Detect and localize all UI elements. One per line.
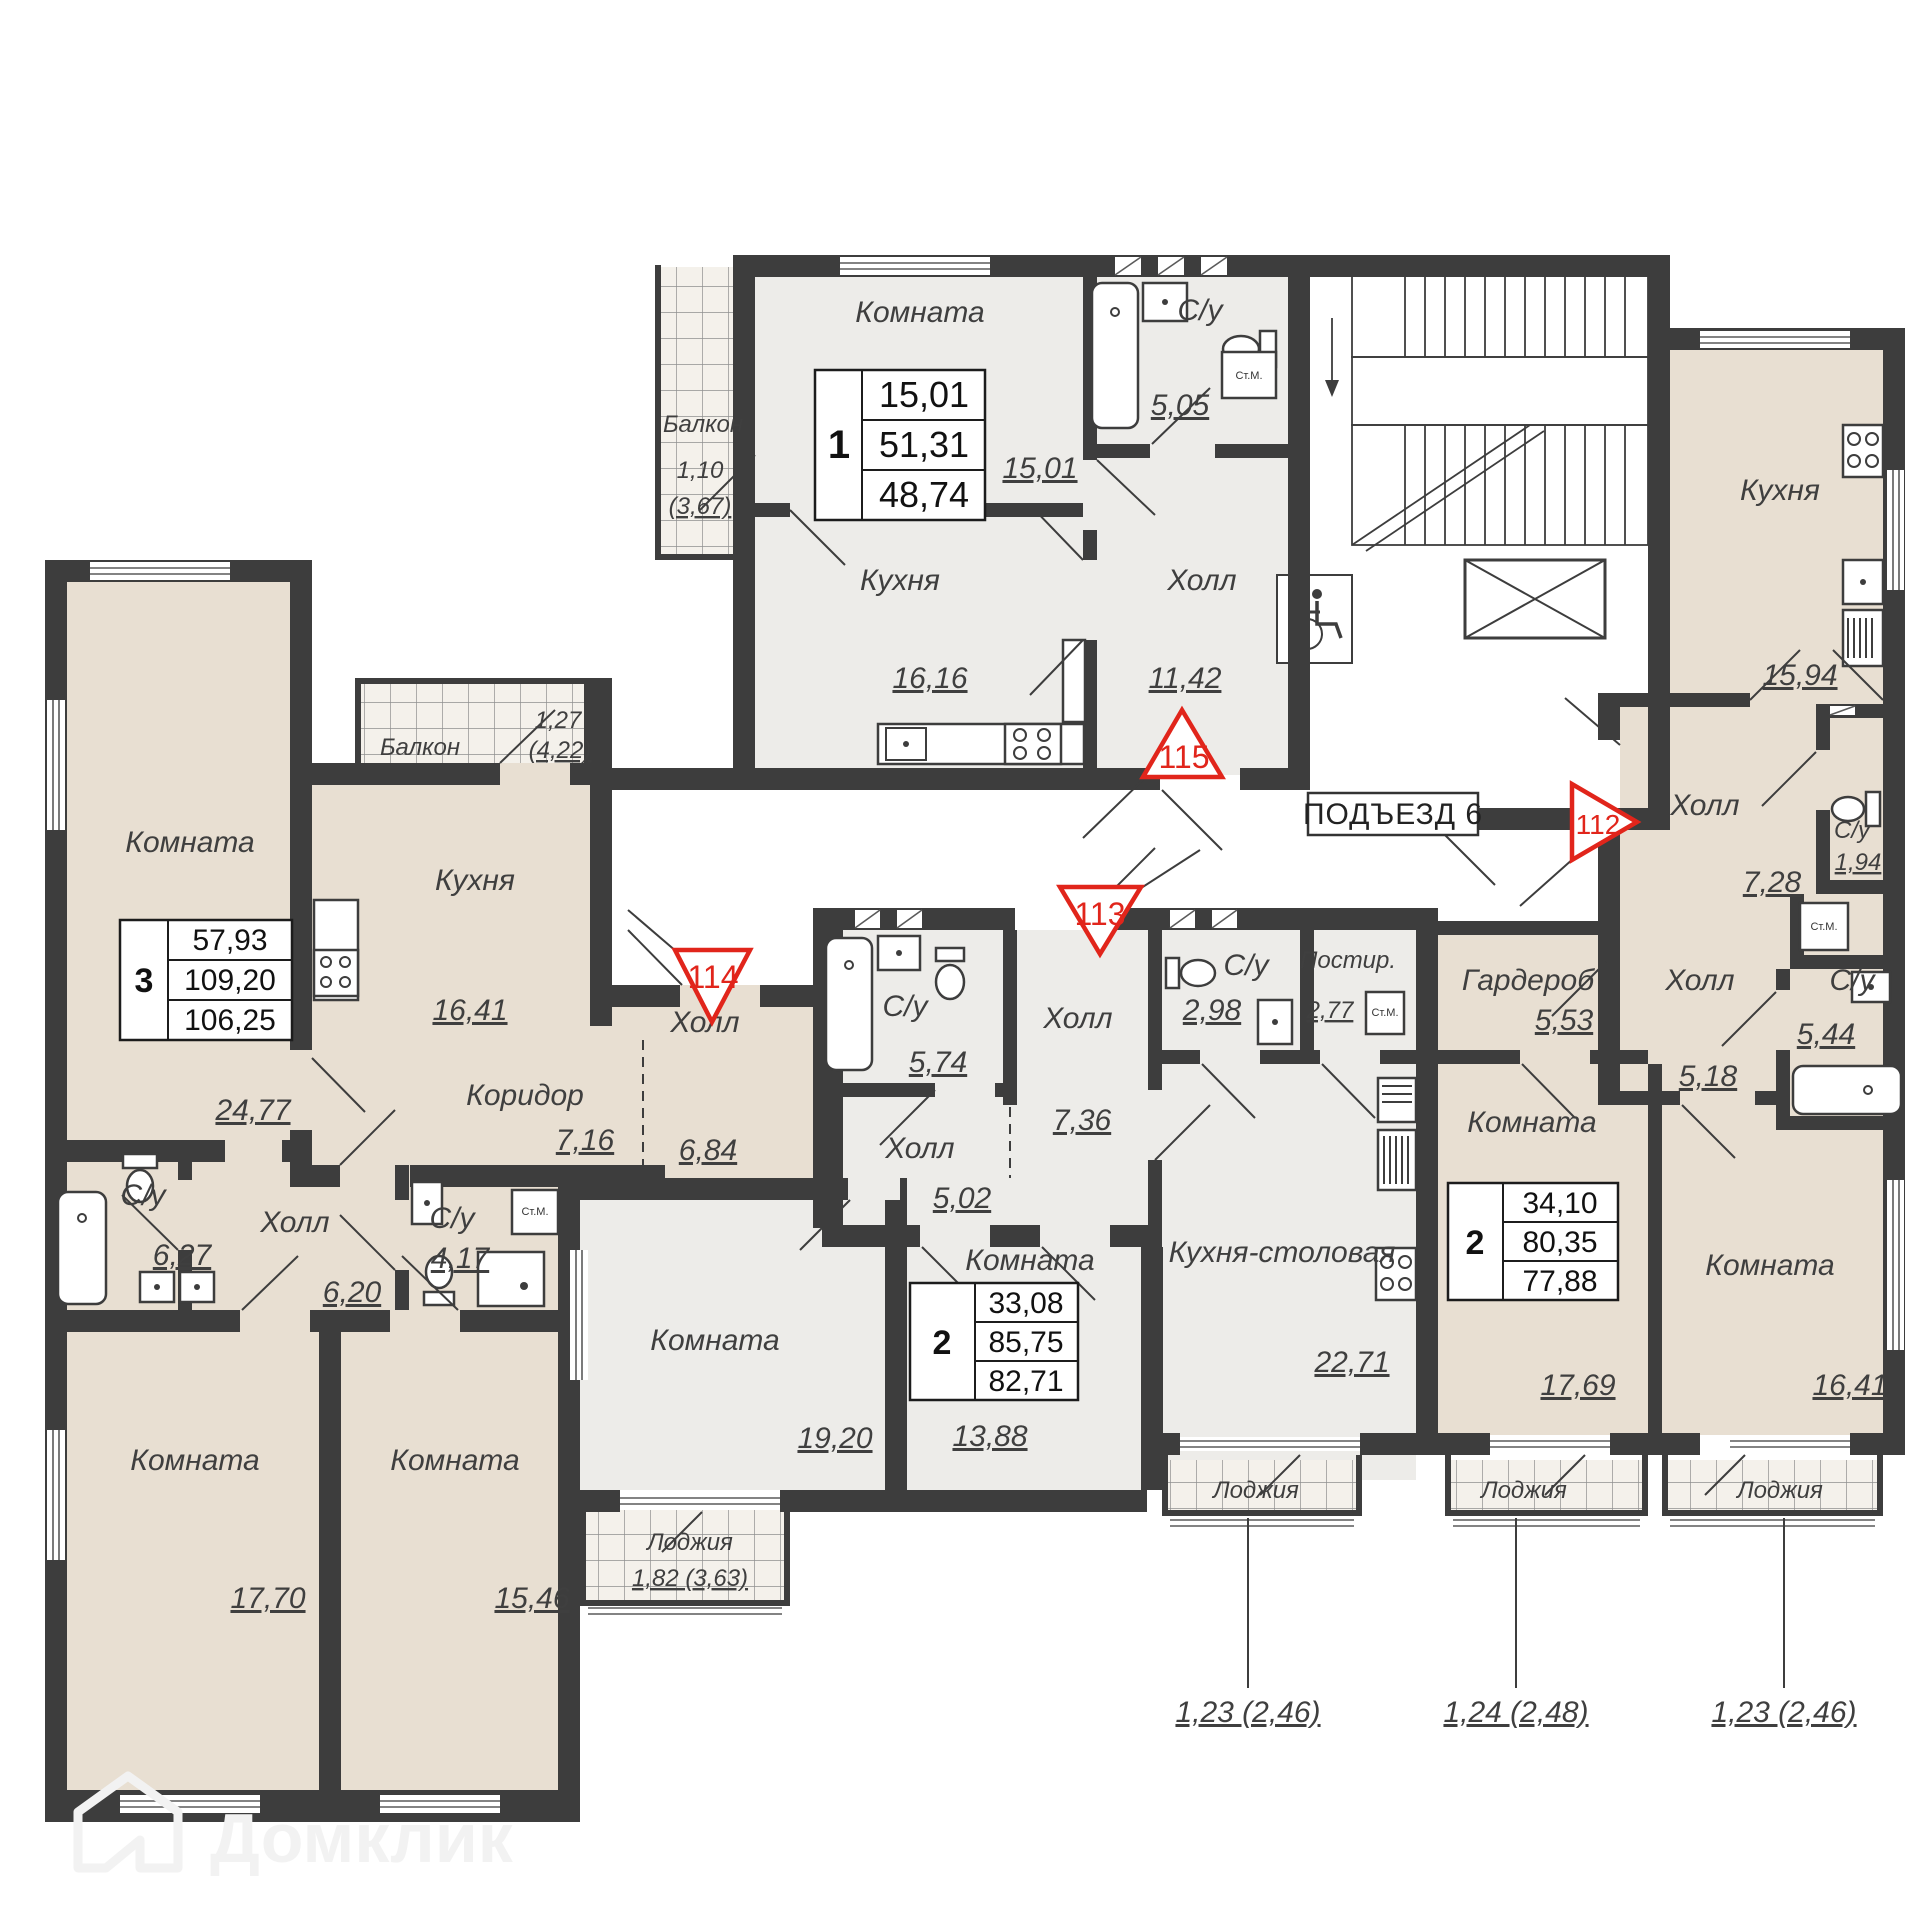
room-label: С/у: [1178, 294, 1225, 327]
room-label: Лоджия: [1211, 1477, 1299, 1504]
unit-114-type: 3: [135, 962, 154, 1000]
room-dim: 16,41: [432, 994, 507, 1027]
room-label: Лоджия: [645, 1529, 733, 1556]
room-dim: 5,05: [1151, 389, 1210, 422]
room-dim: 7,36: [1053, 1104, 1112, 1137]
room-dim: 2,98: [1182, 994, 1242, 1027]
room-dim: 2,77: [1306, 997, 1355, 1024]
room-label: Комната: [390, 1444, 519, 1477]
room-label: Комната: [855, 296, 984, 329]
unit-113-type: 2: [933, 1324, 952, 1362]
washer-label: Ст.М.: [521, 1206, 548, 1218]
room-dim: 24,77: [214, 1094, 291, 1127]
room-dim: 5,74: [909, 1046, 967, 1079]
unit-115-reduced: 48,74: [879, 474, 969, 515]
washer-label: Ст.М.: [1235, 370, 1262, 382]
room-label: Холл: [1664, 964, 1734, 997]
room-label: Лоджия: [1479, 1477, 1567, 1504]
room-label: Кухня: [1740, 474, 1820, 507]
toilet-icon: [1166, 958, 1215, 988]
room-dim: 13,88: [952, 1420, 1027, 1453]
room-label: С/у: [430, 1202, 477, 1235]
room-dim: 22,71: [1313, 1346, 1389, 1379]
brand-watermark-label: Домклик: [210, 1799, 514, 1877]
stove-icon: [1843, 425, 1883, 477]
room-label: С/у: [121, 1179, 168, 1212]
stair-core: [1277, 267, 1648, 663]
toilet-icon: [936, 948, 964, 999]
sink-icon: [878, 936, 920, 970]
unit-marker-label: 114: [687, 959, 738, 995]
room-dim: 11,42: [1149, 662, 1222, 695]
washer-label: Ст.М.: [1810, 921, 1837, 933]
entrance-sign: ПОДЪЕЗД 6: [1303, 793, 1483, 835]
room-label: Холл: [1669, 789, 1739, 822]
room-dim: 19,20: [797, 1422, 872, 1455]
unit-113-total: 85,75: [988, 1326, 1063, 1359]
room-label: Балкон: [663, 411, 743, 438]
room-label: Постир.: [1300, 947, 1396, 974]
room-dim: 15,94: [1762, 659, 1837, 692]
unit-table-114: 3 57,93 109,20 106,25: [120, 920, 292, 1040]
room-label: Лоджия: [1735, 1477, 1823, 1504]
room-dim: 17,69: [1540, 1369, 1615, 1402]
room-dim: 7,28: [1743, 866, 1802, 899]
unit-marker-label: 115: [1158, 739, 1209, 775]
room-dim: 6,27: [153, 1239, 213, 1272]
bathtub-icon: [1092, 283, 1138, 428]
unit-115-total: 51,31: [879, 424, 969, 465]
unit-marker-label: 112: [1576, 809, 1621, 840]
room-label: Комната: [965, 1244, 1094, 1277]
room-dim: 6,84: [679, 1134, 737, 1167]
floor-plan: 1 15,01 51,31 48,74 3 57,93 109,20 106,2…: [0, 0, 1920, 1920]
room-label: Комната: [1705, 1249, 1834, 1282]
room-dim: 4,17: [431, 1242, 491, 1275]
unit-115-type: 1: [828, 423, 850, 467]
room-dim: (3,67): [669, 493, 732, 520]
room-label: Холл: [259, 1206, 329, 1239]
bathtub-icon: [58, 1192, 106, 1304]
room-label: Гардероб: [1462, 964, 1595, 997]
unit-marker-label: 113: [1074, 896, 1125, 932]
room-dim: 16,41: [1812, 1369, 1887, 1402]
room-label: С/у: [1834, 817, 1872, 844]
room-label: Коридор: [466, 1079, 584, 1112]
unit-114-reduced: 106,25: [184, 1004, 276, 1037]
room-label: Холл: [1166, 564, 1236, 597]
room-dim: 5,44: [1797, 1018, 1855, 1051]
unit-114-total: 109,20: [184, 964, 276, 997]
loggia-callout: 1,23 (2,46): [1175, 1696, 1320, 1729]
room-dim: 15,01: [1002, 452, 1077, 485]
unit-112-reduced: 77,88: [1522, 1265, 1597, 1298]
room-label: Кухня: [860, 564, 940, 597]
room-dim: 1,94: [1835, 849, 1882, 876]
room-dim: (4,22): [529, 737, 592, 764]
room-dim: 6,20: [323, 1276, 382, 1309]
room-dim: 1,27: [535, 707, 583, 734]
unit-114-living: 57,93: [192, 924, 267, 957]
room-dim: 5,53: [1535, 1004, 1594, 1037]
unit-table-112: 2 34,10 80,35 77,88: [1448, 1183, 1618, 1300]
room-label: Кухня: [435, 864, 515, 897]
unit-112-living: 34,10: [1522, 1187, 1597, 1220]
loggia-callout: 1,24 (2,48): [1443, 1696, 1588, 1729]
room-dim: 7,16: [556, 1124, 615, 1157]
stove-icon: [1005, 724, 1061, 764]
elevator-icon: [1465, 560, 1605, 638]
bathtub-icon: [826, 938, 872, 1070]
loggia-callouts: 1,23 (2,46) 1,24 (2,48) 1,23 (2,46): [1175, 1518, 1856, 1729]
room-label: Холл: [884, 1132, 954, 1165]
room-dim: 1,82 (3,63): [632, 1565, 748, 1592]
room-dim: 15,46: [494, 1582, 569, 1615]
unit-112-total: 80,35: [1522, 1226, 1597, 1259]
unit-table-113: 2 33,08 85,75 82,71: [910, 1283, 1078, 1400]
room-label: Холл: [1042, 1002, 1112, 1035]
room-label: Комната: [125, 826, 254, 859]
room-dim: 5,02: [933, 1182, 992, 1215]
room-dim: 17,70: [230, 1582, 305, 1615]
entrance-sign-label: ПОДЪЕЗД 6: [1303, 798, 1483, 831]
room-label: С/у: [883, 990, 930, 1023]
stove-icon: [314, 950, 358, 996]
unit-115-living: 15,01: [879, 374, 969, 415]
room-label: С/у: [1830, 964, 1877, 997]
room-dim: 5,18: [1679, 1060, 1738, 1093]
bathtub-icon: [1793, 1066, 1901, 1114]
room-label: Балкон: [380, 734, 460, 761]
unit-113-living: 33,08: [988, 1287, 1063, 1320]
room-label: С/у: [1224, 949, 1271, 982]
room-label: Комната: [650, 1324, 779, 1357]
room-label: Кухня-столовая: [1169, 1236, 1396, 1269]
room-dim: 16,16: [892, 662, 967, 695]
room-label: Комната: [130, 1444, 259, 1477]
room-dim: 1,10: [677, 457, 724, 484]
unit-112-type: 2: [1466, 1224, 1485, 1262]
washer-label: Ст.М.: [1371, 1007, 1398, 1019]
room-label: Комната: [1467, 1106, 1596, 1139]
unit-table-115: 1 15,01 51,31 48,74: [815, 370, 985, 520]
loggia-callout: 1,23 (2,46): [1711, 1696, 1856, 1729]
unit-113-reduced: 82,71: [988, 1365, 1063, 1398]
